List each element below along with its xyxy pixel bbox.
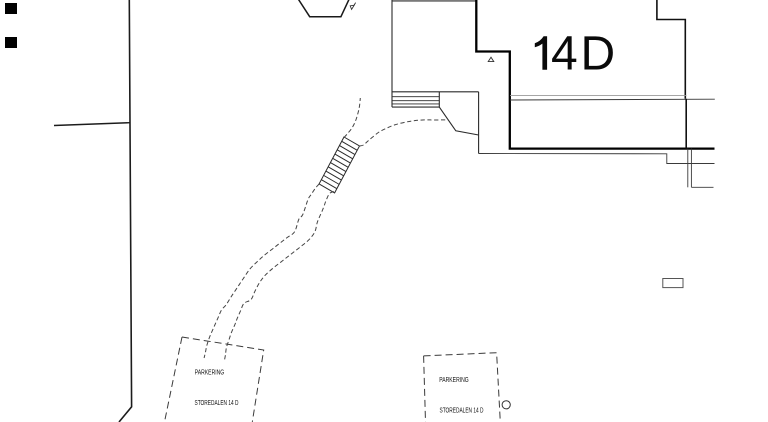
svg-text:PARKERING: PARKERING bbox=[195, 369, 225, 376]
svg-text:PARKERING: PARKERING bbox=[439, 377, 469, 384]
svg-text:4D: 4D bbox=[551, 28, 618, 81]
svg-text:STOREDALEN 14 D: STOREDALEN 14 D bbox=[440, 407, 484, 414]
svg-text:STOREDALEN 14 D: STOREDALEN 14 D bbox=[195, 400, 239, 407]
